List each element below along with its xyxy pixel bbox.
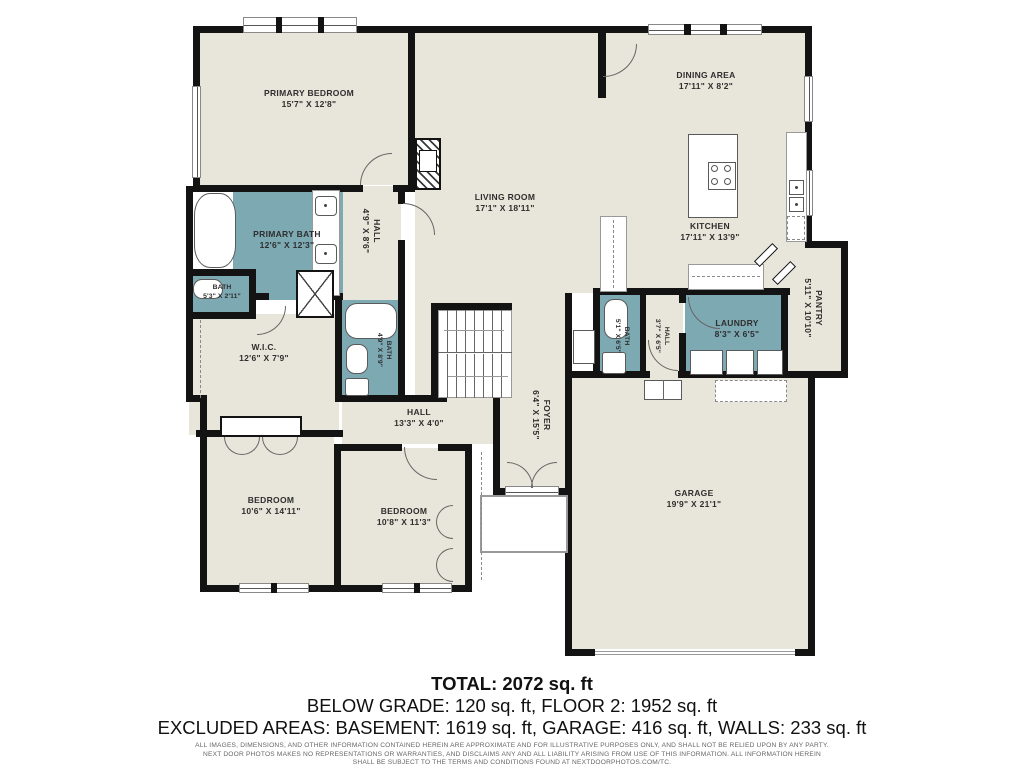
stair-tread <box>474 310 475 352</box>
wall <box>431 303 512 310</box>
burner <box>711 165 718 172</box>
room-name: BEDROOM <box>241 495 300 506</box>
room-dims: 12'6" X 7'9" <box>239 353 289 364</box>
stair-tread <box>456 310 457 352</box>
window <box>192 86 201 178</box>
bathtub <box>194 193 236 268</box>
room-dims: 12'6" X 12'3" <box>253 240 321 251</box>
room-label-hall-south: HALL 13'3" X 4'0" <box>394 407 444 429</box>
window-divider <box>271 583 277 593</box>
faucet-dot <box>324 204 327 207</box>
window <box>243 17 357 33</box>
wall <box>249 293 269 300</box>
wall <box>337 444 402 451</box>
wall <box>565 649 595 656</box>
room-label-foyer: FOYER 6'4" X 15'5" <box>530 390 552 440</box>
room-label-bath-mid: BATH 4'9" X 8'9" <box>374 333 392 367</box>
room-label-dining-area: DINING AREA 17'11" X 8'2" <box>676 70 735 92</box>
room-dims: 17'1" X 18'11" <box>475 203 535 214</box>
counter-dash <box>692 276 760 277</box>
room-label-primary-bath: PRIMARY BATH 12'6" X 12'3" <box>253 229 321 251</box>
room-label-bedroom-left: BEDROOM 10'6" X 14'11" <box>241 495 300 517</box>
footer: TOTAL: 2072 sq. ft BELOW GRADE: 120 sq. … <box>0 673 1024 768</box>
dryer <box>726 350 754 375</box>
burner <box>711 178 718 185</box>
room-name: W.I.C. <box>239 342 289 353</box>
window-divider <box>414 583 420 593</box>
wall <box>296 430 343 437</box>
toilet <box>346 344 368 374</box>
room-name: KITCHEN <box>680 221 739 232</box>
window-divider <box>684 24 691 35</box>
stair-arrow <box>448 376 508 377</box>
wall <box>465 444 472 592</box>
room-name: LIVING ROOM <box>475 192 535 203</box>
stair-tread <box>447 310 448 352</box>
burner <box>724 178 731 185</box>
step-line <box>663 380 664 400</box>
wall <box>186 312 256 319</box>
room-name: HALL <box>371 209 382 254</box>
wall <box>640 295 646 378</box>
faucet-dot <box>324 252 327 255</box>
wall <box>431 303 438 402</box>
stair-tread <box>501 310 502 352</box>
wall <box>841 241 848 378</box>
room-label-hall-mud: HALL 3'7" X 6'5" <box>652 319 670 353</box>
sink <box>345 378 369 396</box>
stair-tread <box>483 310 484 352</box>
wic-shelf-dash <box>200 320 201 398</box>
room-dims: 5'11" X 10'10" <box>802 278 813 337</box>
room-name: GARAGE <box>667 488 722 499</box>
stair-tread <box>465 310 466 352</box>
window <box>648 24 762 35</box>
dishwasher <box>787 216 805 240</box>
room-name: LAUNDRY <box>715 318 760 329</box>
room-name: PANTRY <box>813 278 824 337</box>
wall <box>200 402 207 592</box>
room-dims: 15'7" X 12'8" <box>264 99 354 110</box>
window-divider <box>318 17 324 33</box>
room-label-bath-small: BATH 5'3" X 2'11" <box>203 284 241 302</box>
room-label-bath-mud: BATH 5'1" X 6'5" <box>612 319 630 353</box>
cabinet-dash <box>613 220 614 288</box>
burner <box>724 165 731 172</box>
sink <box>602 352 626 374</box>
disclaimer-line: SHALL BE SUBJECT TO THE TERMS AND CONDIT… <box>0 759 1024 768</box>
porch <box>480 495 568 553</box>
wall <box>679 295 686 303</box>
room-dims: 19'9" X 21'1" <box>667 499 722 510</box>
wall <box>334 444 341 592</box>
room-label-bedroom-mid: BEDROOM 10'8" X 11'3" <box>377 506 431 528</box>
room-dims: 17'11" X 13'9" <box>680 232 739 243</box>
stair-landing-line <box>438 352 512 353</box>
faucet-dot <box>795 186 798 189</box>
room-name: PRIMARY BATH <box>253 229 321 240</box>
room-label-living-room: LIVING ROOM 17'1" X 18'11" <box>475 192 535 214</box>
room-dims: 8'3" X 6'5" <box>715 329 760 340</box>
room-label-garage: GARAGE 19'9" X 21'1" <box>667 488 722 510</box>
wall <box>335 293 342 402</box>
garage-door-sill <box>595 654 795 655</box>
room-name: BATH <box>621 319 630 353</box>
room-dims: 3'7" X 6'5" <box>652 319 661 353</box>
room-name: HALL <box>661 319 670 353</box>
wall <box>398 240 405 402</box>
room-dims: 4'9" X 8'9" <box>374 333 383 367</box>
window-divider <box>720 24 727 35</box>
wall <box>795 649 815 656</box>
room-name: FOYER <box>541 390 552 440</box>
room-name: PRIMARY BEDROOM <box>264 88 354 99</box>
room-name: HALL <box>394 407 444 418</box>
room-dims: 4'9" X 8'6" <box>360 209 371 254</box>
room-dims: 5'1" X 6'5" <box>612 319 621 353</box>
stair-tread <box>492 310 493 352</box>
wall <box>493 395 500 495</box>
mud-cabinet <box>573 330 595 364</box>
excluded-area-text: EXCLUDED AREAS: BASEMENT: 1619 sq. ft, G… <box>0 717 1024 739</box>
room-name: BATH <box>383 333 392 367</box>
room-dims: 13'3" X 4'0" <box>394 418 444 429</box>
closet-dash <box>481 452 482 580</box>
mud-counter <box>688 264 764 290</box>
room-name: BEDROOM <box>377 506 431 517</box>
grade-area-text: BELOW GRADE: 120 sq. ft, FLOOR 2: 1952 s… <box>0 695 1024 717</box>
closet-bump <box>220 416 302 437</box>
room-dims: 6'4" X 15'5" <box>530 390 541 440</box>
disclaimer-line: NEXT DOOR PHOTOS MAKES NO REPRESENTATION… <box>0 751 1024 760</box>
room-label-pantry: PANTRY 5'11" X 10'10" <box>802 278 824 337</box>
wall <box>808 378 815 656</box>
room-label-kitchen: KITCHEN 17'11" X 13'9" <box>680 221 739 243</box>
room-dims: 10'6" X 14'11" <box>241 506 300 517</box>
total-area-text: TOTAL: 2072 sq. ft <box>0 673 1024 695</box>
room-label-laundry: LAUNDRY 8'3" X 6'5" <box>715 318 760 340</box>
room-label-wic: W.I.C. 12'6" X 7'9" <box>239 342 289 364</box>
wall <box>186 395 207 402</box>
window <box>804 76 813 122</box>
room-label-hall-upper: HALL 4'9" X 8'6" <box>360 209 382 254</box>
garage-storage <box>715 380 787 402</box>
room-name: BATH <box>203 284 241 293</box>
room-dims: 17'11" X 8'2" <box>676 81 735 92</box>
garage-door-sill <box>595 651 795 652</box>
wall <box>186 186 193 402</box>
wall <box>408 26 415 192</box>
room-dims: 10'8" X 11'3" <box>377 517 431 528</box>
window-divider <box>276 17 282 33</box>
washer <box>690 350 723 375</box>
faucet-dot <box>795 203 798 206</box>
wall <box>186 269 256 276</box>
wall <box>309 585 382 592</box>
laundry-sink <box>757 350 783 375</box>
room-garage <box>572 378 808 649</box>
room-label-primary-bedroom: PRIMARY BEDROOM 15'7" X 12'8" <box>264 88 354 110</box>
stair-arrow <box>444 330 504 331</box>
room-dims: 5'3" X 2'11" <box>203 293 241 302</box>
floor-plan: PRIMARY BEDROOM 15'7" X 12'8" LIVING ROO… <box>0 0 1024 768</box>
shower <box>296 270 334 318</box>
room-name: DINING AREA <box>676 70 735 81</box>
disclaimer-line: ALL IMAGES, DIMENSIONS, AND OTHER INFORM… <box>0 742 1024 751</box>
wall <box>398 186 405 204</box>
fireplace-box <box>419 150 437 172</box>
